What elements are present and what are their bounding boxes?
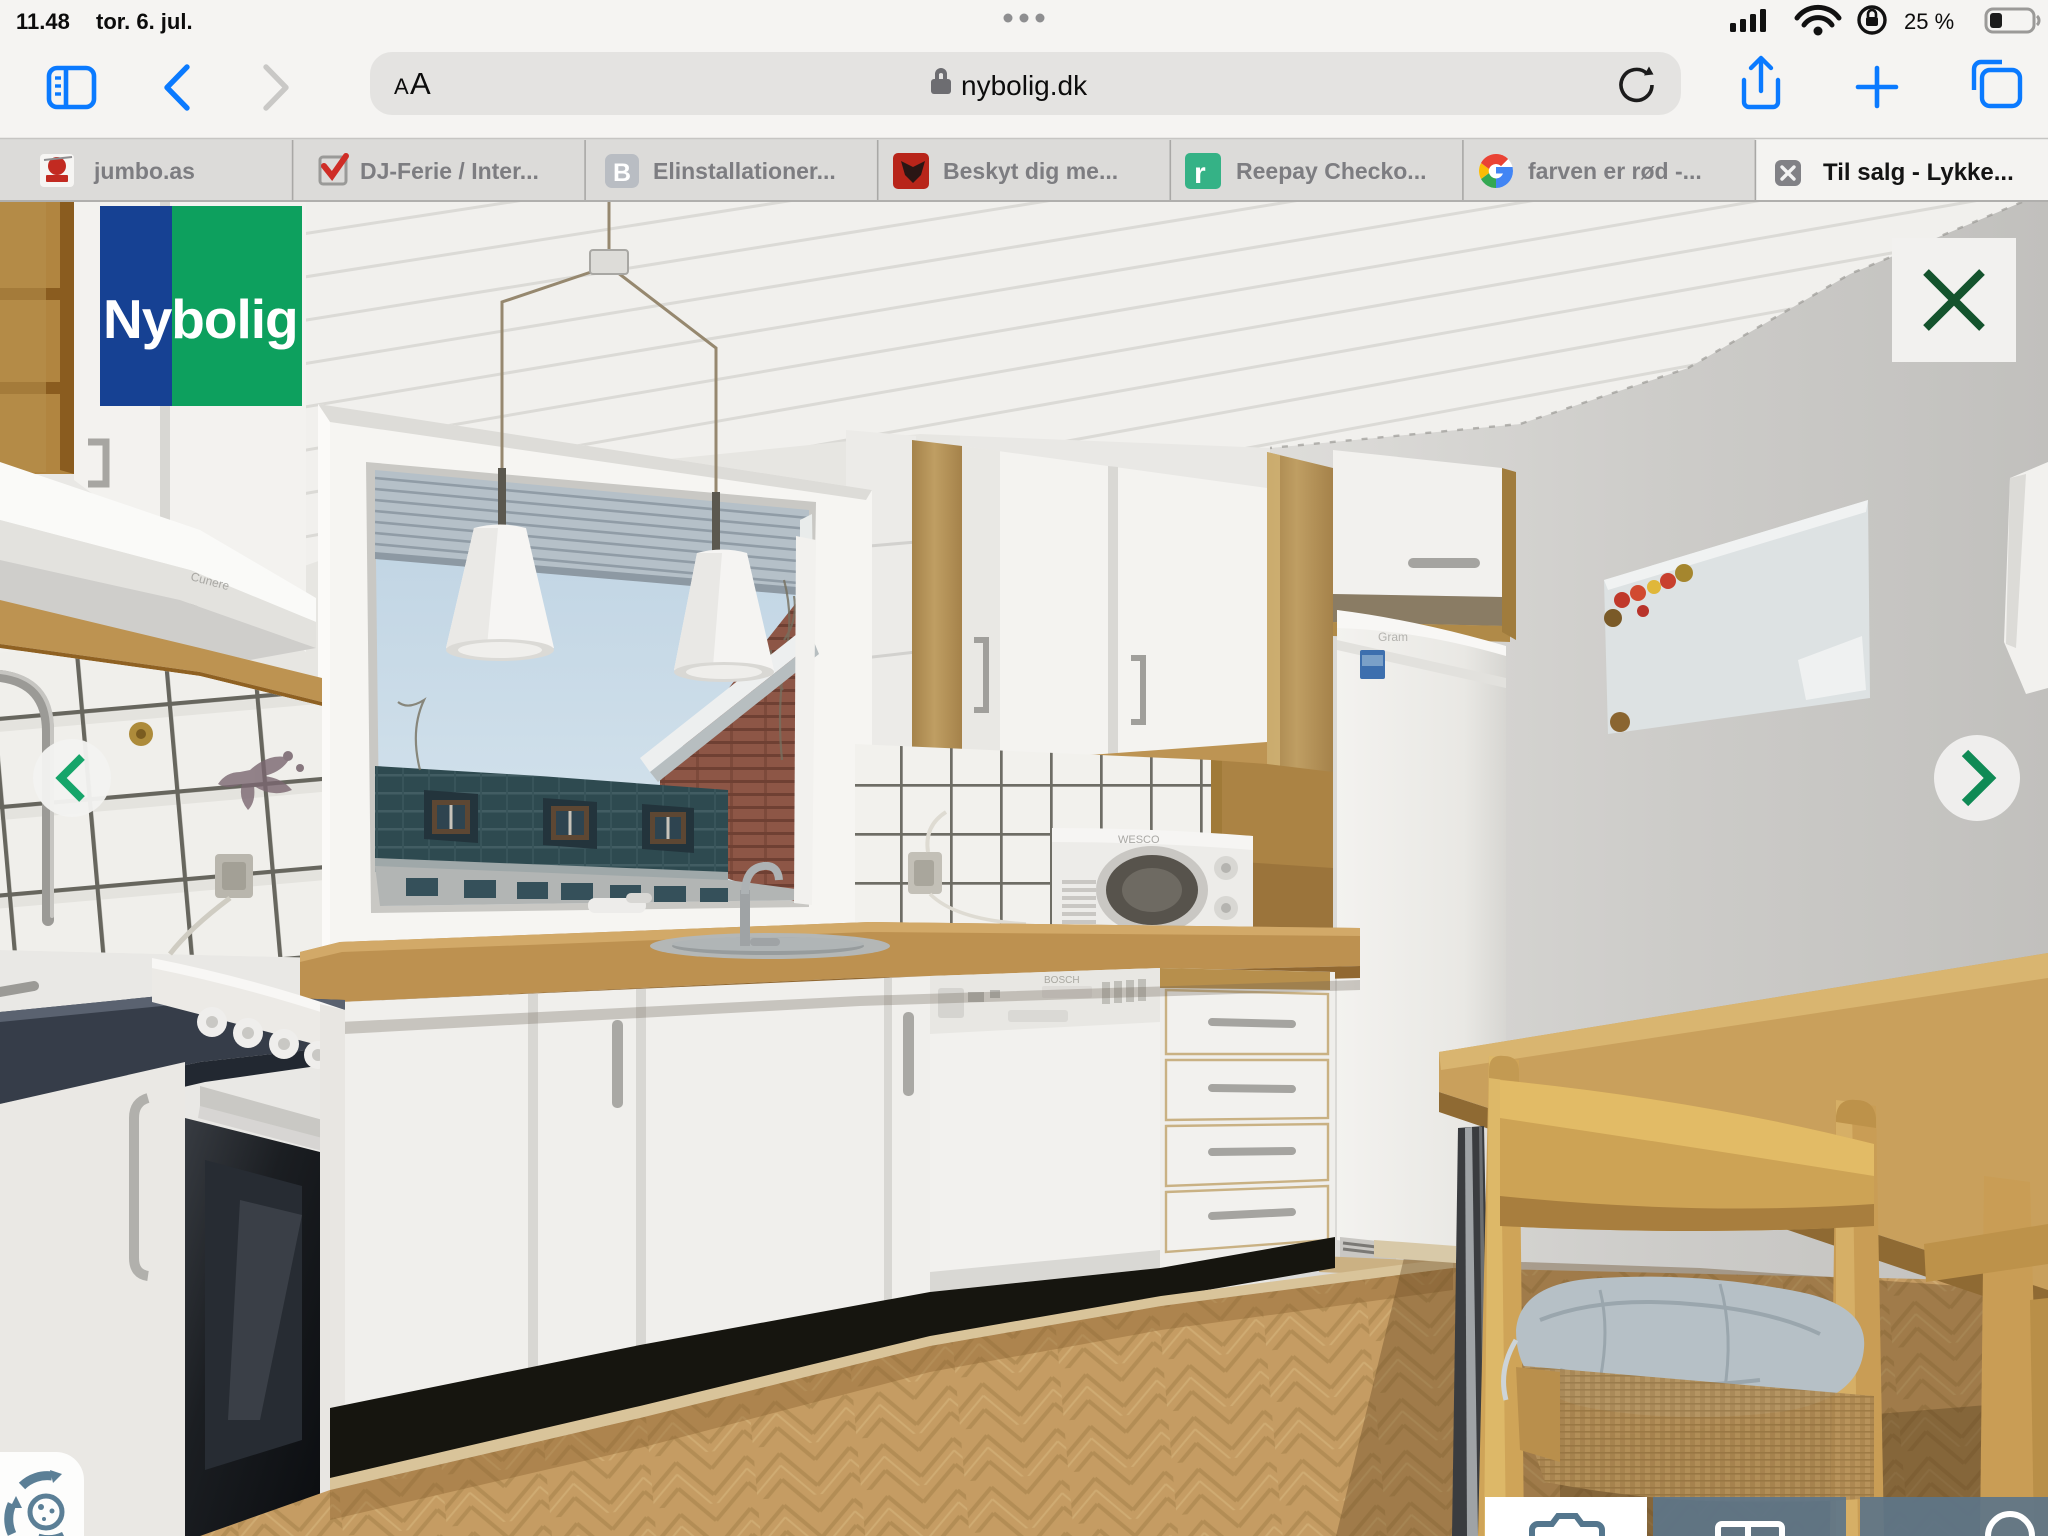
svg-text:BOSCH: BOSCH xyxy=(1044,975,1080,986)
svg-text:B: B xyxy=(613,159,631,187)
svg-text:r: r xyxy=(1194,157,1206,190)
svg-text:nybolig.dk: nybolig.dk xyxy=(961,70,1088,101)
svg-text:jumbo.as: jumbo.as xyxy=(93,158,195,184)
svg-text:A: A xyxy=(410,66,431,101)
svg-text:Beskyt dig me...: Beskyt dig me... xyxy=(943,158,1118,184)
svg-text:farven er rød -...: farven er rød -... xyxy=(1528,158,1702,184)
svg-text:Elinstallationer...: Elinstallationer... xyxy=(653,158,836,184)
svg-text:A: A xyxy=(394,74,409,99)
svg-text:Gram: Gram xyxy=(1378,630,1408,644)
svg-text:Nybolig: Nybolig xyxy=(103,288,298,350)
svg-text:Reepay Checko...: Reepay Checko... xyxy=(1236,158,1426,184)
svg-text:25 %: 25 % xyxy=(1904,9,1954,34)
svg-text:tor. 6. jul.: tor. 6. jul. xyxy=(96,9,193,34)
svg-text:DJ-Ferie / Inter...: DJ-Ferie / Inter... xyxy=(360,158,539,184)
svg-text:11.48: 11.48 xyxy=(16,9,70,34)
svg-text:Til salg - Lykke...: Til salg - Lykke... xyxy=(1823,159,2014,186)
svg-text:WESCO: WESCO xyxy=(1118,834,1160,846)
